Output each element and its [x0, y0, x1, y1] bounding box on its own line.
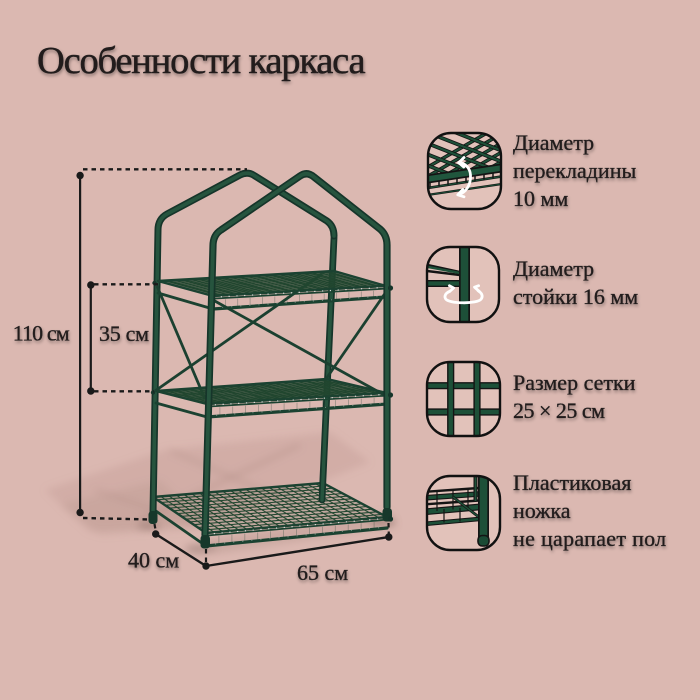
- svg-text:стойки 16 мм: стойки 16 мм: [513, 284, 638, 309]
- svg-text:ножка: ножка: [513, 498, 571, 523]
- svg-text:10 мм: 10 мм: [513, 186, 568, 211]
- svg-text:35 см: 35 см: [99, 321, 149, 346]
- svg-text:25 × 25 см: 25 × 25 см: [513, 398, 605, 423]
- svg-text:Размер сетки: Размер сетки: [513, 370, 636, 395]
- svg-text:110 см: 110 см: [13, 321, 70, 346]
- svg-text:40 см: 40 см: [128, 548, 179, 573]
- svg-text:не царапает пол: не царапает пол: [513, 526, 666, 551]
- svg-text:перекладины: перекладины: [513, 158, 636, 183]
- svg-text:Пластиковая: Пластиковая: [513, 470, 631, 495]
- svg-text:Диаметр: Диаметр: [513, 130, 594, 155]
- svg-text:65 см: 65 см: [297, 560, 348, 585]
- svg-text:Диаметр: Диаметр: [513, 256, 594, 281]
- svg-text:Особенности каркаса: Особенности каркаса: [37, 40, 365, 82]
